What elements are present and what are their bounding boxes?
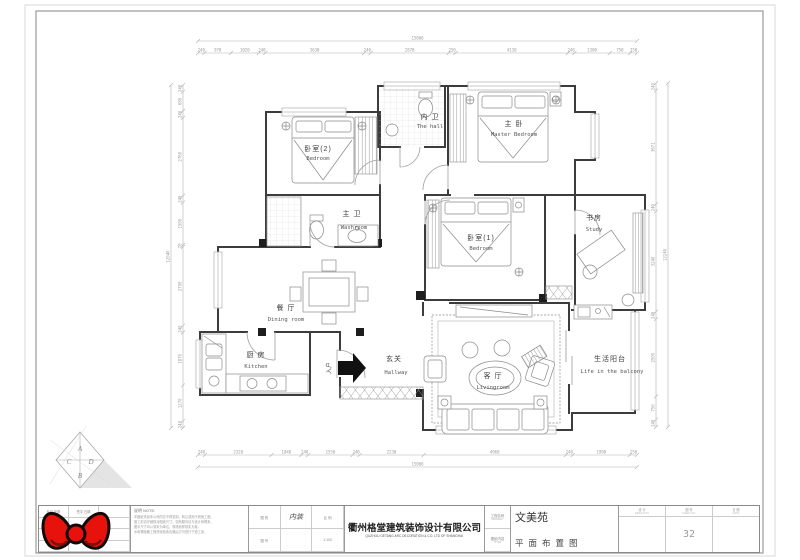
info-cell: 图 号: [249, 529, 281, 552]
window: [468, 82, 560, 90]
info-cell-scale: 1:100: [312, 529, 344, 552]
svg-text:卧室(1): 卧室(1): [467, 233, 495, 242]
dim-label: 3630: [310, 48, 320, 53]
room-label-living: 客 厅Livingroom: [476, 371, 510, 391]
dim-label: 1500: [178, 218, 183, 228]
dim-label: 240: [258, 48, 266, 53]
balcony-slider: [566, 330, 572, 385]
dim-label: 15066: [411, 462, 424, 467]
study-desk: [577, 230, 634, 306]
dim-label: 240: [651, 203, 656, 211]
pouf: [494, 340, 510, 356]
svg-text:厨 房: 厨 房: [247, 350, 266, 359]
keyplan-logo: A D C B: [50, 426, 132, 488]
svg-text:书房: 书房: [586, 213, 602, 222]
dim-label: 4960: [490, 450, 500, 455]
dim-label: 2790: [178, 281, 183, 291]
dim-label: 250: [630, 48, 638, 53]
toilet-washroom: [310, 215, 324, 239]
bookshelf: [633, 213, 643, 293]
dim-label: 1020: [240, 48, 250, 53]
dim-label: 250: [630, 450, 638, 455]
dim-label: 1990: [596, 450, 606, 455]
logo-letter-d: D: [87, 458, 93, 466]
svg-text:Bedroom: Bedroom: [469, 246, 493, 252]
svg-text:Dining room: Dining room: [268, 317, 305, 323]
dim-label: 2500: [651, 352, 656, 362]
page-number: 32: [683, 517, 695, 552]
room-label-hallway: 玄关Hallway: [384, 354, 408, 376]
entry-arrow: 入户: [325, 353, 366, 383]
dining-table: [290, 260, 368, 324]
svg-text:客 厅: 客 厅: [484, 371, 503, 380]
dim-label: 750: [616, 48, 624, 53]
info-cell: [281, 529, 313, 552]
page-columns: 设 计 DESIGN BY 图 号 SHEET NO. 32 日 期 DATE: [619, 506, 759, 552]
svg-text:生活阳台: 生活阳台: [594, 354, 626, 363]
shower-tile: [267, 197, 301, 246]
dim-label: 15066: [411, 36, 424, 41]
drawing-title: 平面布置图: [515, 537, 583, 549]
revision-table: 标记 处数 签字 日期: [39, 506, 131, 552]
floor-plan-svg: 入户 卧室(2)Bedroom 内 卫The hall 主 卧Master Be…: [0, 0, 800, 560]
svg-text:Master Bedroom: Master Bedroom: [491, 132, 538, 138]
entry-label: 入户: [325, 362, 333, 374]
svg-text:餐 厅: 餐 厅: [277, 303, 296, 312]
room-label-washroom: 主 卫Washroom: [341, 209, 368, 231]
speaker: [534, 396, 547, 409]
svg-text:主 卧: 主 卧: [505, 119, 524, 128]
meta-label-en: PROJECT: [491, 518, 503, 521]
dim-label: 240: [178, 110, 183, 118]
dim-label: 240: [566, 450, 574, 455]
meta-label-en: TITLE: [494, 541, 501, 544]
dim-label: 240: [198, 450, 206, 455]
info-cell: 图 别: [249, 506, 281, 529]
svg-text:玄关: 玄关: [386, 354, 402, 363]
dim-label: 240: [352, 450, 360, 455]
svg-text:Life in the balcony: Life in the balcony: [581, 369, 645, 375]
room-label-study: 书房Study: [586, 213, 603, 233]
logo-letter-b: B: [78, 472, 83, 480]
svg-text:主 卫: 主 卫: [343, 209, 362, 218]
svg-text:Livingroom: Livingroom: [476, 385, 510, 391]
dim-label: 3671: [651, 142, 656, 152]
svg-text:Bedroom: Bedroom: [306, 156, 330, 162]
revision-header: [99, 506, 130, 518]
logo-letter-c: C: [67, 458, 72, 466]
dim-label: 240: [301, 450, 309, 455]
speaker: [438, 396, 451, 409]
dim-label: 2760: [178, 151, 183, 161]
pouf: [462, 342, 478, 358]
dim-label: 1040: [282, 450, 292, 455]
drawing-sheet: 入户 卧室(2)Bedroom 内 卫The hall 主 卧Master Be…: [0, 0, 800, 560]
dim-label: 1550: [326, 450, 336, 455]
window: [591, 114, 599, 158]
project-block: 文美苑 平面布置图: [511, 506, 619, 552]
window: [631, 312, 639, 410]
info-cell: 比 例: [312, 506, 344, 529]
dim-label: 240: [651, 419, 656, 427]
svg-text:The hall: The hall: [417, 124, 444, 130]
sofa: [442, 404, 548, 434]
svg-text:Hallway: Hallway: [384, 370, 408, 376]
dim-label: 240: [651, 311, 656, 319]
dim-label: 3240: [651, 256, 656, 266]
info-cell-phase: 内装: [281, 506, 313, 529]
svg-text:卧室(2): 卧室(2): [304, 144, 332, 153]
notes-title: 说明 NOTE:: [134, 508, 245, 514]
dim-label: 2320: [233, 450, 243, 455]
info-grid: 图 别 内装 比 例 图 号 1:100: [249, 506, 345, 552]
dim-label: 12040: [166, 250, 171, 263]
note-line: 水电等隐蔽工程须经验收合格后方可进行下道工序。: [134, 530, 245, 535]
room-label-dining: 餐 厅Dining room: [268, 303, 305, 323]
dim-label: 2870: [405, 48, 415, 53]
dim-label: 240: [364, 48, 372, 53]
dim-label: 250: [448, 48, 456, 53]
bed-bedroom1: [441, 198, 524, 266]
revision-header: 签字 日期: [69, 506, 99, 518]
dim-label: 240: [178, 420, 183, 428]
project-name: 文美苑: [515, 509, 614, 525]
dim-label: 680: [178, 97, 183, 105]
logo-letter-a: A: [77, 445, 83, 453]
dim-label: 12240: [663, 248, 668, 261]
shoe-cabinet: [340, 387, 423, 399]
dim-label: 240: [568, 48, 576, 53]
wardrobe: [450, 94, 466, 162]
armchair-left: [424, 356, 446, 382]
window: [282, 108, 346, 116]
title-block: 标记 处数 签字 日期 说明 NOTE: 本图纸未经本公司同意不得复制、转让或用…: [38, 505, 760, 553]
page-col-date: 日 期 DATE: [713, 506, 759, 552]
room-label-kitchen: 厨 房Kitchen: [244, 350, 267, 370]
dim-label: 1270: [178, 398, 183, 408]
dim-label: 4130: [507, 48, 517, 53]
meta-labels: 工程名称 PROJECT 图纸内容 TITLE: [485, 506, 511, 552]
svg-text:Kitchen: Kitchen: [244, 364, 267, 370]
revision-header: 标记 处数: [39, 506, 69, 518]
svg-text:内 卫: 内 卫: [421, 112, 440, 121]
dim-label: 240: [178, 195, 183, 203]
dim-label: 240: [178, 325, 183, 333]
dim-label: 1870: [178, 354, 183, 364]
page-col-sheet: 图 号 SHEET NO. 32: [666, 506, 713, 552]
dim-label: 240: [651, 83, 656, 91]
dim-label: 2230: [387, 450, 397, 455]
balcony-sink: [574, 305, 612, 319]
dim-label: 750: [651, 404, 656, 412]
notes-panel: 说明 NOTE: 本图纸未经本公司同意不得复制、转让或用于其他工程。 施工前请仔…: [131, 506, 249, 552]
dim-label: 240: [198, 48, 206, 53]
dim-label: 240: [178, 84, 183, 92]
closet: [546, 286, 572, 299]
page-col-design: 设 计 DESIGN BY: [619, 506, 666, 552]
dim-label: 70: [178, 243, 183, 248]
svg-text:Study: Study: [586, 227, 603, 233]
company-name-en: QUZHOU GETANG ARC DECORATION & CO. LTD O…: [366, 534, 464, 538]
company-block: 衢州格堂建筑装饰设计有限公司 QUZHOU GETANG ARC DECORAT…: [345, 506, 485, 552]
svg-text:Washroom: Washroom: [341, 225, 368, 231]
dim-label: 970: [214, 48, 222, 53]
window: [214, 252, 222, 308]
company-name-zh: 衢州格堂建筑装饰设计有限公司: [348, 520, 481, 534]
tv-cabinet: [456, 305, 532, 317]
dim-label: 1300: [587, 48, 597, 53]
basin-inner-bath: [386, 124, 398, 136]
